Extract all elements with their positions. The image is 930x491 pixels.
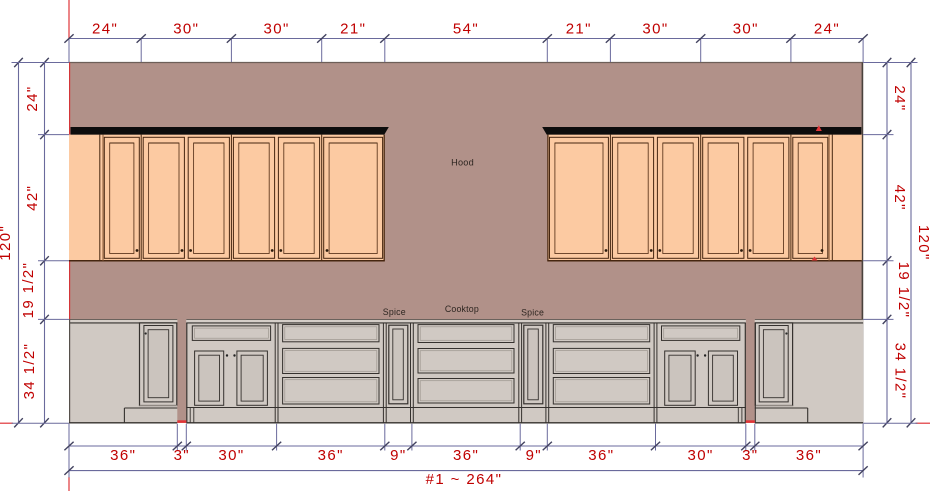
- svg-text:19 1/2": 19 1/2": [20, 262, 37, 319]
- svg-text:36": 36": [318, 447, 344, 464]
- svg-text:9": 9": [390, 447, 406, 464]
- svg-text:3": 3": [174, 447, 190, 464]
- svg-text:120": 120": [915, 225, 930, 261]
- svg-text:34 1/2": 34 1/2": [21, 343, 38, 400]
- svg-text:24": 24": [92, 21, 118, 38]
- svg-text:Spice: Spice: [521, 308, 544, 318]
- svg-text:36": 36": [588, 447, 614, 464]
- svg-text:42": 42": [891, 185, 908, 211]
- svg-text:30": 30": [642, 21, 668, 38]
- svg-text:21": 21": [340, 21, 366, 38]
- svg-text:21": 21": [566, 21, 592, 38]
- svg-text:30": 30": [687, 447, 713, 464]
- svg-text:3": 3": [742, 447, 758, 464]
- svg-text:Spice: Spice: [383, 307, 406, 317]
- svg-text:24": 24": [814, 21, 840, 38]
- svg-text:24": 24": [891, 85, 908, 111]
- svg-text:#1 ~ 264": #1 ~ 264": [426, 471, 503, 488]
- svg-text:24": 24": [24, 85, 41, 111]
- svg-text:42": 42": [24, 185, 41, 211]
- svg-text:9": 9": [526, 447, 542, 464]
- svg-text:30": 30": [173, 21, 199, 38]
- svg-text:19 1/2": 19 1/2": [895, 262, 912, 319]
- svg-text:54": 54": [453, 21, 479, 38]
- svg-text:36": 36": [110, 447, 136, 464]
- svg-text:Hood: Hood: [451, 157, 474, 167]
- svg-text:Cooktop: Cooktop: [445, 304, 479, 314]
- svg-text:36": 36": [796, 447, 822, 464]
- svg-text:30": 30": [263, 21, 289, 38]
- svg-text:30": 30": [218, 447, 244, 464]
- svg-text:36": 36": [453, 447, 479, 464]
- svg-text:120": 120": [0, 225, 14, 261]
- svg-text:34 1/2": 34 1/2": [892, 343, 909, 400]
- svg-text:30": 30": [733, 21, 759, 38]
